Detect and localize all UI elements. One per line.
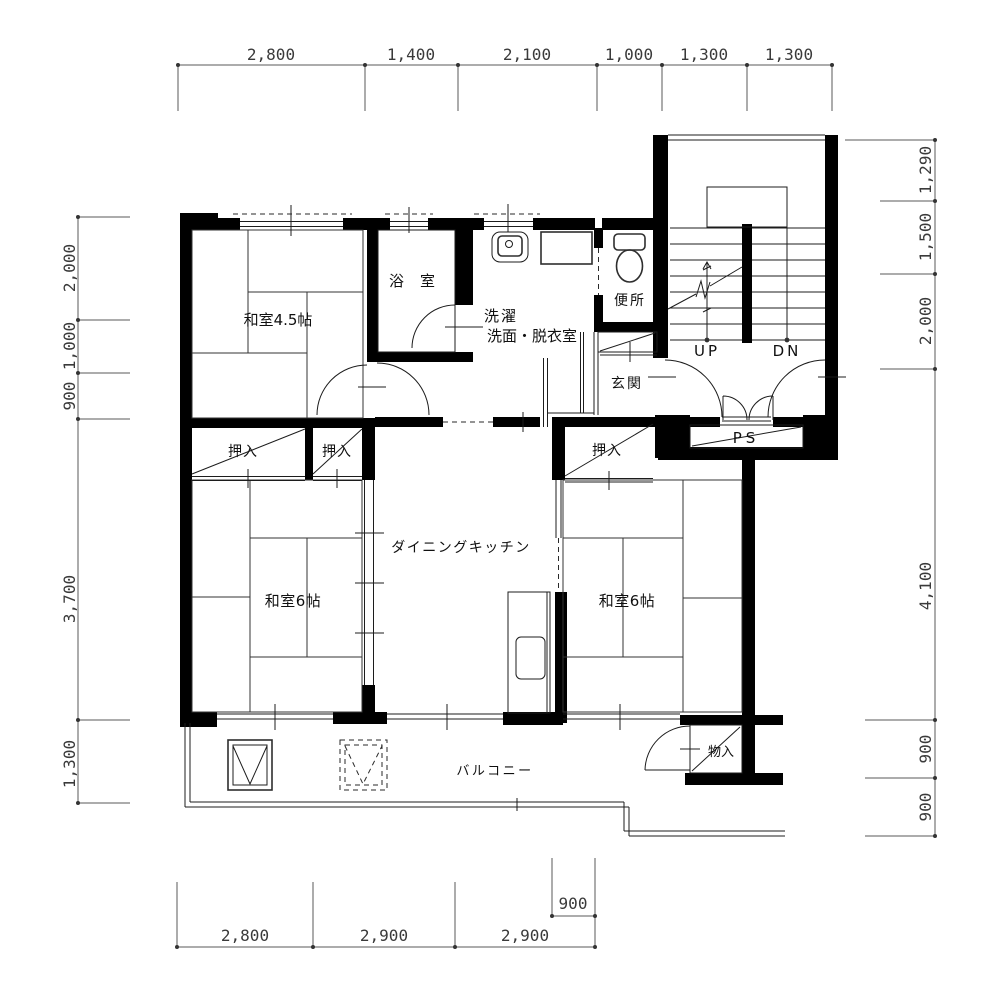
balcony-hatch-solid <box>228 740 272 790</box>
dimension-chain-right: 1,290 1,500 2,000 4,100 900 900 <box>845 138 937 838</box>
label-monoire: 物入 <box>708 745 734 760</box>
label-laundry-line1: 洗濯 <box>484 307 518 325</box>
dim-left-2: 900 <box>60 382 79 411</box>
kitchen-counter-icon <box>508 592 550 713</box>
label-washitsu-6-left: 和室6帖 <box>265 592 322 610</box>
label-dining-kitchen: ダイニングキッチン <box>391 540 531 556</box>
dim-left-0: 2,000 <box>60 244 79 292</box>
label-bath: 浴室 <box>389 272 451 290</box>
dim-top-0: 2,800 <box>247 45 295 64</box>
dim-left-1: 1,000 <box>60 322 79 370</box>
dim-bottom-extra: 900 <box>559 894 588 913</box>
dim-right-0: 1,290 <box>916 146 935 194</box>
dim-right-2: 2,000 <box>916 297 935 345</box>
dimension-chain-top: 2,800 1,400 2,100 1,000 1,300 1,300 <box>176 45 834 111</box>
dim-top-1: 1,400 <box>387 45 435 64</box>
dim-left-3: 3,700 <box>60 575 79 623</box>
label-washitsu-4-5: 和室4.5帖 <box>244 311 313 329</box>
genkan-shelf <box>598 332 657 362</box>
dim-left-4: 1,300 <box>60 740 79 788</box>
label-oshiire-2: 押入 <box>322 444 352 460</box>
dim-top-4: 1,300 <box>680 45 728 64</box>
toilet-icon <box>614 234 645 282</box>
label-washitsu-6-right: 和室6帖 <box>599 592 656 610</box>
label-oshiire-1: 押入 <box>228 444 258 460</box>
dim-top-5: 1,300 <box>765 45 813 64</box>
label-ps: PS <box>733 429 760 447</box>
dim-bottom-1: 2,900 <box>360 926 408 945</box>
label-laundry-line2: 洗面・脱衣室 <box>487 327 577 345</box>
dim-right-1: 1,500 <box>916 213 935 261</box>
dim-right-3: 4,100 <box>916 562 935 610</box>
dim-right-4: 900 <box>916 735 935 764</box>
dim-bottom-0: 2,800 <box>221 926 269 945</box>
washing-machine-icon <box>541 232 592 264</box>
bath-room-outline <box>378 230 455 352</box>
dim-right-5: 900 <box>916 793 935 822</box>
label-toilet: 便所 <box>614 293 646 309</box>
dim-bottom-2: 2,900 <box>501 926 549 945</box>
dim-top-2: 2,100 <box>503 45 551 64</box>
dimension-chain-left: 2,000 1,000 900 3,700 1,300 <box>60 215 130 805</box>
label-balcony: バルコニー <box>456 764 533 779</box>
room-labels: 和室4.5帖 和室6帖 和室6帖 ダイニングキッチン 浴室 洗濯 洗面・脱衣室 … <box>228 272 801 779</box>
dim-top-3: 1,000 <box>605 45 653 64</box>
washbasin-icon <box>492 232 528 262</box>
label-genkan: 玄関 <box>611 375 643 392</box>
label-stairs-up: UP <box>694 342 720 360</box>
label-stairs-dn: DN <box>773 342 802 360</box>
dimension-chain-bottom: 2,800 2,900 2,900 900 <box>175 858 597 949</box>
floor-plan-page: 和室4.5帖 和室6帖 和室6帖 ダイニングキッチン 浴室 洗濯 洗面・脱衣室 … <box>0 0 1000 1000</box>
balcony-hatch-dashed <box>340 740 387 790</box>
floor-plan-drawing: 和室4.5帖 和室6帖 和室6帖 ダイニングキッチン 浴室 洗濯 洗面・脱衣室 … <box>0 0 1000 1000</box>
bottom-windows <box>217 704 680 730</box>
label-oshiire-3: 押入 <box>592 443 622 459</box>
